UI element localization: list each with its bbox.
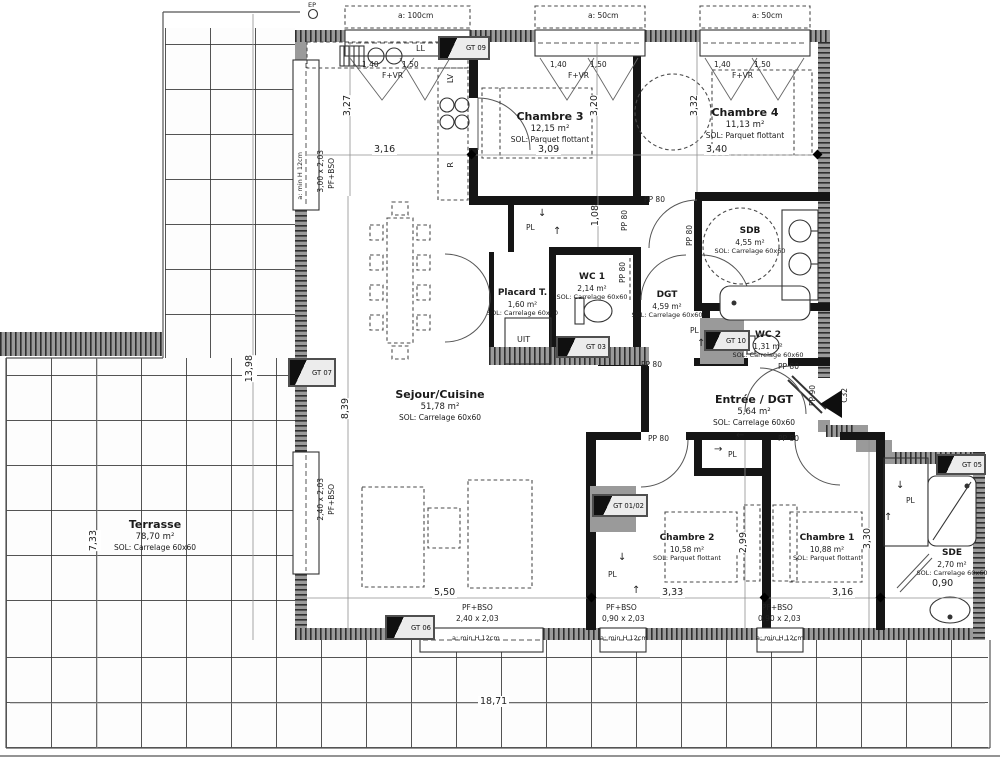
- appliance-label-r: R: [446, 162, 455, 168]
- gt-box-10: GT 10: [704, 330, 750, 351]
- gt-box-06: GT 06: [385, 615, 435, 640]
- window-amin-left1: a: min H 12cm: [296, 152, 304, 200]
- dim-3-16-top: 3,16: [372, 144, 397, 155]
- dim-8-39: 8,39: [338, 398, 353, 419]
- door-label-pp80-ch4: PP 80: [644, 195, 665, 204]
- arrow-icon-up-ch3pl: ↑: [553, 226, 561, 237]
- dim-3-30: 3,30: [860, 528, 875, 549]
- gt-box-01-02: GT 01/02: [592, 494, 648, 517]
- door-label-pp80-wc2: PP 80: [778, 362, 799, 371]
- room-label-dgt: DGT 4,59 m² SOL: Carrelage 60x60: [622, 290, 712, 320]
- room-label-chambre4: Chambre 4 11,13 m² SOL: Parquet flottant: [685, 106, 805, 141]
- arrow-icon-up-sde: ↑: [884, 512, 892, 523]
- room-label-sde: SDE 2,70 m² SOL: Carrelage 60x60: [908, 548, 996, 578]
- shower-icon-sde: [928, 476, 976, 546]
- sofa-icon: [362, 480, 532, 588]
- window-type-ch4: F+VR: [732, 71, 753, 80]
- dim-5-50: 5,50: [432, 587, 457, 598]
- window-size-left2: 2,40 x 2,03: [316, 478, 325, 521]
- window-size-ch3-b: 1,50: [590, 60, 607, 69]
- window-size-bot2: 0,90 x 2,03: [602, 614, 645, 623]
- dim-3-16-bot: 3,16: [830, 587, 855, 598]
- dim-3-40: 3,40: [704, 144, 729, 155]
- window-type-bot2: PF+BSO: [606, 603, 637, 612]
- window-amin-bot1: a: min H 12cm: [756, 634, 804, 642]
- window-amin-bot2: a: min H 12cm: [600, 634, 648, 642]
- dim-1-08: 1,08: [588, 205, 603, 226]
- window-allege-ch3: a: 50cm: [588, 11, 618, 20]
- window-size-kitchen-b: 1,50: [402, 60, 419, 69]
- dim-3-20: 3,20: [587, 95, 602, 116]
- closet-label-pl-entree: PL: [728, 450, 737, 459]
- closet-label-pl-ch2: PL: [608, 570, 617, 579]
- window-type-botc: PF+BSO: [462, 603, 493, 612]
- window-size-ch4-a: 1,40: [714, 60, 731, 69]
- arrow-icon-down-sde: ↓: [896, 480, 904, 491]
- dim-3-09: 3,09: [536, 144, 561, 155]
- room-label-chambre2: Chambre 2 10,58 m² SOL: Parquet flottant: [630, 533, 744, 563]
- dim-2-99: 2,99: [736, 532, 751, 553]
- window-amin-botc: a: min H 12cm: [452, 634, 500, 642]
- window-size-kitchen-a: 1,40: [362, 60, 379, 69]
- room-label-sejour: Sejour/Cuisine 51,78 m² SOL: Carrelage 6…: [370, 388, 510, 423]
- room-label-sdb: SDB 4,55 m² SOL: Carrelage 60x60: [700, 226, 800, 256]
- door-label-pp80-dgt: PP 80: [641, 360, 662, 369]
- door-label-c32: C32: [840, 388, 849, 403]
- arrow-icon-right-entree: →: [714, 444, 722, 455]
- window-size-ch4-b: 1,50: [754, 60, 771, 69]
- arrow-icon-down-ch2: ↓: [618, 552, 626, 563]
- window-type-left2: PF+BSO: [327, 484, 336, 515]
- door-label-pp80-ch1: PP 80: [778, 434, 799, 443]
- window-allege-ch4: a: 50cm: [752, 11, 782, 20]
- window-size-botc: 2,40 x 2,03: [456, 614, 499, 623]
- window-size-ch3-a: 1,40: [550, 60, 567, 69]
- door-label-pp80-wc1: PP 80: [618, 262, 627, 283]
- closet-label-pl-ch3: PL: [526, 223, 535, 232]
- door-label-pp80-ch2: PP 80: [648, 434, 669, 443]
- dim-13-98: 13,98: [242, 355, 257, 382]
- window-allege-kitchen: a: 100cm: [398, 11, 433, 20]
- gt-box-09: GT 09: [438, 36, 490, 60]
- dim-0-90: 0,90: [930, 578, 955, 589]
- arrow-icon-up-ch2: ↑: [632, 585, 640, 596]
- floor-plan: Terrasse 78,70 m² SOL: Carrelage 60x60 S…: [0, 0, 1000, 767]
- dim-18-71: 18,71: [478, 696, 509, 707]
- closet-label-pl-sde: PL: [906, 496, 915, 505]
- window-type-ch3: F+VR: [568, 71, 589, 80]
- gt-box-05: GT 05: [936, 454, 986, 475]
- sink-icon-sde: [930, 597, 970, 623]
- hob-icon: [440, 98, 469, 129]
- door-label-pp80-hall: PP 80: [620, 210, 629, 231]
- room-label-terrasse: Terrasse 78,70 m² SOL: Carrelage 60x60: [95, 518, 215, 553]
- window-type-left1: PF+BSO: [327, 158, 336, 189]
- ep-label: EP: [308, 1, 316, 9]
- appliance-label-lv: LV: [446, 74, 455, 83]
- arrow-icon-left-entree: ←: [736, 430, 744, 441]
- window-size-bot1: 0,90 x 2,03: [758, 614, 801, 623]
- dim-7-33: 7,33: [86, 530, 101, 551]
- gt-box-07: GT 07: [288, 358, 336, 387]
- door-label-pp90-entree: PP 90: [808, 385, 817, 406]
- appliance-label-uit: UIT: [517, 335, 530, 344]
- window-type-bot1: PF+BSO: [762, 603, 793, 612]
- dim-3-27: 3,27: [340, 95, 355, 116]
- window-size-left1: 3,00 x 2,03: [316, 150, 325, 193]
- door-arcs: [445, 98, 932, 592]
- appliance-label-ll: LL: [416, 44, 425, 53]
- closet-label-pl-dgt: PL: [690, 326, 699, 335]
- dim-3-32: 3,32: [687, 95, 702, 116]
- door-label-pp80-sdb: PP 80: [685, 225, 694, 246]
- ep-marker-icon: [309, 10, 318, 19]
- arrow-icon-down-ch3pl: ↓: [538, 208, 546, 219]
- gt-box-03: GT 03: [556, 336, 610, 358]
- dining-table-icon: [370, 202, 430, 359]
- sink-icon-sdb2: [789, 253, 811, 275]
- dim-3-33: 3,33: [660, 587, 685, 598]
- window-type-kitchen: F+VR: [382, 71, 403, 80]
- toilet-icon-wc1: [575, 298, 612, 324]
- room-label-entree: Entrée / DGT 5,64 m² SOL: Carrelage 60x6…: [692, 393, 816, 428]
